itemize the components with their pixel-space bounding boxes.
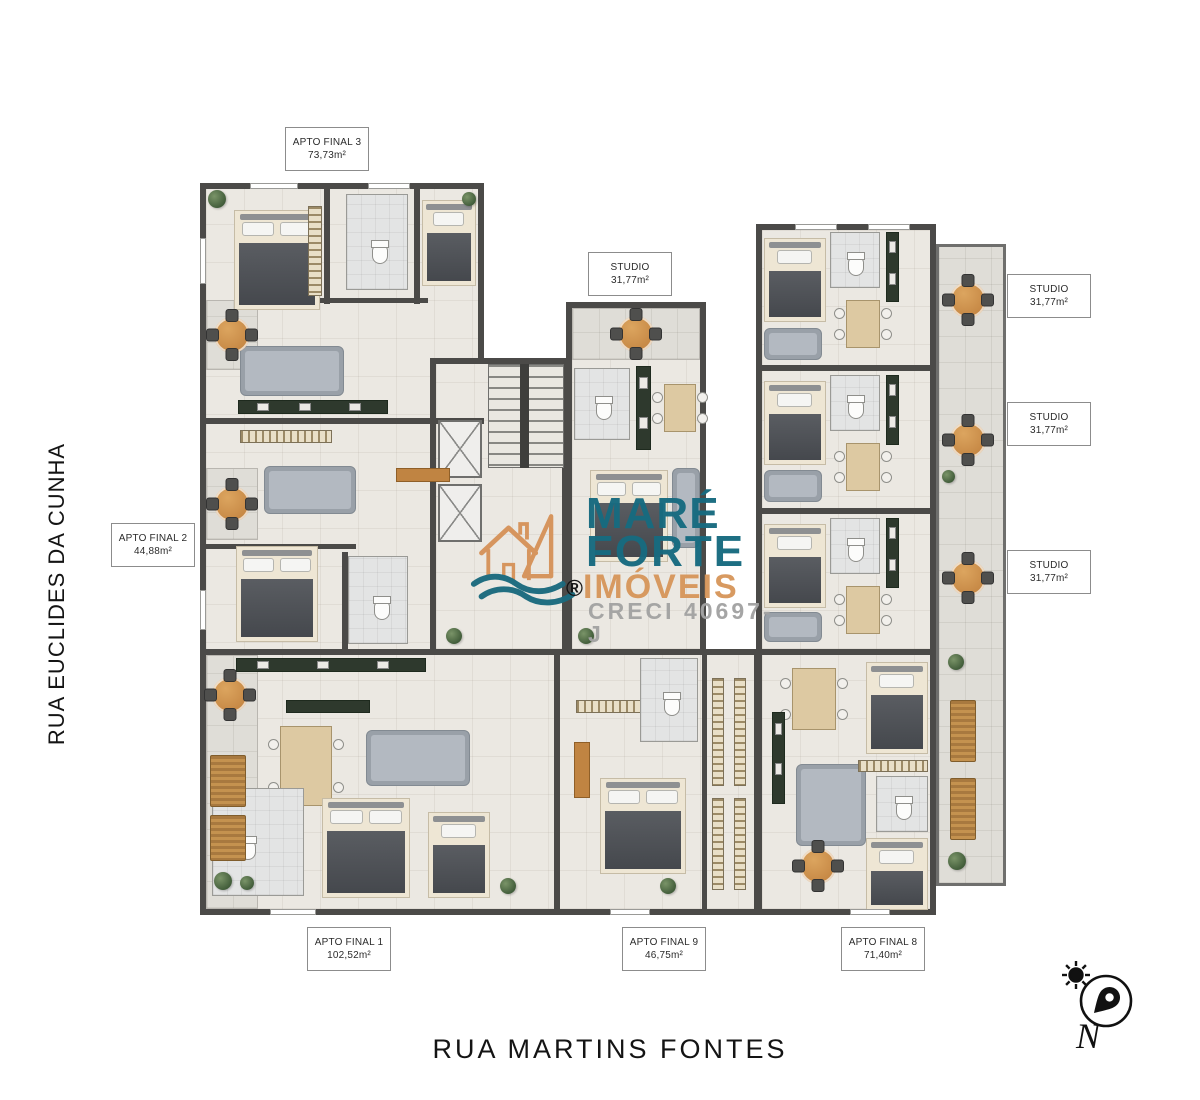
toilet	[374, 600, 390, 620]
unit-label-apto-final-8: APTO FINAL 8 71,40m²	[841, 927, 925, 971]
toilet	[848, 399, 864, 419]
toilet	[896, 800, 912, 820]
corridor-closet	[712, 678, 724, 786]
north-label: N	[1075, 1016, 1102, 1056]
dining-table	[846, 443, 880, 491]
unit-area: 31,77m²	[591, 274, 669, 288]
toilet	[848, 542, 864, 562]
toilet	[848, 256, 864, 276]
unit-name: APTO FINAL 1	[310, 936, 388, 950]
single-bed	[422, 200, 476, 286]
window	[250, 183, 298, 189]
corridor-closet	[734, 798, 746, 890]
plant	[446, 628, 462, 644]
window	[270, 909, 316, 915]
unit-name: APTO FINAL 2	[114, 532, 192, 546]
kitchen-counter	[636, 366, 651, 450]
brand-watermark: MARÉ FORTE ®IMÓVEIS CRECI 40697-J	[468, 488, 778, 638]
toilet	[372, 244, 388, 264]
kitchen-counter	[886, 375, 899, 445]
window	[200, 238, 206, 284]
floorplan-canvas: APTO FINAL 3 73,73m² STUDIO 31,77m² STUD…	[0, 0, 1200, 1100]
unit-label-studio-right-1: STUDIO 31,77m²	[1007, 274, 1091, 318]
window	[795, 224, 837, 230]
unit-area: 46,75m²	[625, 949, 703, 963]
kitchen-counter	[886, 232, 899, 302]
round-table	[206, 309, 258, 361]
plant	[462, 192, 476, 206]
plant	[942, 470, 955, 483]
unit-area: 71,40m²	[844, 949, 922, 963]
double-bed	[600, 778, 686, 874]
plant	[948, 852, 966, 870]
bed	[764, 238, 826, 322]
corridor-closet	[712, 798, 724, 890]
registered-trademark-icon: ®	[566, 575, 583, 601]
wardrobe	[858, 760, 928, 772]
unit-area: 73,73m²	[288, 149, 366, 163]
wall	[756, 508, 936, 514]
round-table	[942, 414, 994, 466]
street-name-left: RUA EUCLIDES DA CUNHA	[44, 439, 70, 749]
window	[610, 909, 650, 915]
stair-rail	[520, 364, 529, 468]
unit-name: STUDIO	[1010, 559, 1088, 573]
plant	[240, 876, 254, 890]
unit-area: 31,77m²	[1010, 572, 1088, 586]
kitchen-counter	[236, 658, 426, 672]
unit-area: 44,88m²	[114, 545, 192, 559]
license-number: CRECI 40697-J	[588, 600, 778, 646]
wardrobe	[240, 430, 332, 443]
wall	[324, 189, 330, 304]
toilet	[596, 400, 612, 420]
location-pin-icon	[1087, 983, 1125, 1021]
wardrobe	[308, 206, 322, 296]
plant	[208, 190, 226, 208]
toilet	[664, 696, 680, 716]
kitchen-island	[286, 700, 370, 713]
wall	[554, 655, 560, 915]
window	[868, 224, 910, 230]
wood-bench	[210, 755, 246, 807]
round-table	[942, 552, 994, 604]
desk	[396, 468, 450, 482]
plant	[214, 872, 232, 890]
wall	[702, 655, 707, 915]
dining-table	[846, 300, 880, 348]
wood-bench	[950, 700, 976, 762]
round-table	[792, 840, 844, 892]
unit-label-studio-center: STUDIO 31,77m²	[588, 252, 672, 296]
wood-bench	[950, 778, 976, 840]
sofa	[796, 764, 866, 846]
kitchen-counter	[886, 518, 899, 588]
bed	[866, 838, 928, 910]
bed	[764, 381, 826, 465]
plant	[500, 878, 516, 894]
dining-table	[664, 384, 696, 432]
double-bed	[236, 546, 318, 642]
unit-name: STUDIO	[1010, 411, 1088, 425]
unit-name: APTO FINAL 9	[625, 936, 703, 950]
window	[200, 590, 206, 630]
sofa	[264, 466, 356, 514]
window	[368, 183, 410, 189]
unit-name: APTO FINAL 8	[844, 936, 922, 950]
unit-label-apto-final-2: APTO FINAL 2 44,88m²	[111, 523, 195, 567]
unit-name: STUDIO	[1010, 283, 1088, 297]
window	[850, 909, 890, 915]
street-name-bottom: RUA MARTINS FONTES	[360, 1034, 860, 1065]
round-table	[206, 478, 258, 530]
unit-name: STUDIO	[591, 261, 669, 275]
sofa	[764, 328, 822, 360]
kitchen-island	[772, 712, 785, 804]
corridor-closet	[734, 678, 746, 786]
unit-name: APTO FINAL 3	[288, 136, 366, 150]
unit-area: 102,52m²	[310, 949, 388, 963]
double-bed	[322, 798, 410, 898]
unit-label-studio-right-2: STUDIO 31,77m²	[1007, 402, 1091, 446]
unit-area: 31,77m²	[1010, 296, 1088, 310]
unit-label-apto-final-9: APTO FINAL 9 46,75m²	[622, 927, 706, 971]
round-table	[610, 308, 662, 360]
round-table	[204, 669, 256, 721]
dining-table	[792, 668, 836, 730]
wall	[756, 365, 936, 371]
unit-label-apto-final-3: APTO FINAL 3 73,73m²	[285, 127, 369, 171]
wood-bench	[210, 815, 246, 861]
bed	[866, 662, 928, 754]
wall	[414, 189, 420, 304]
desk	[574, 742, 590, 798]
sofa	[366, 730, 470, 786]
compass-north-indicator: N	[1042, 946, 1172, 1064]
round-table	[942, 274, 994, 326]
plant	[660, 878, 676, 894]
kitchen-counter	[238, 400, 388, 414]
plant	[948, 654, 964, 670]
unit-area: 31,77m²	[1010, 424, 1088, 438]
single-bed	[428, 812, 490, 898]
unit-label-studio-right-3: STUDIO 31,77m²	[1007, 550, 1091, 594]
dining-table	[846, 586, 880, 634]
unit-label-apto-final-1: APTO FINAL 1 102,52m²	[307, 927, 391, 971]
